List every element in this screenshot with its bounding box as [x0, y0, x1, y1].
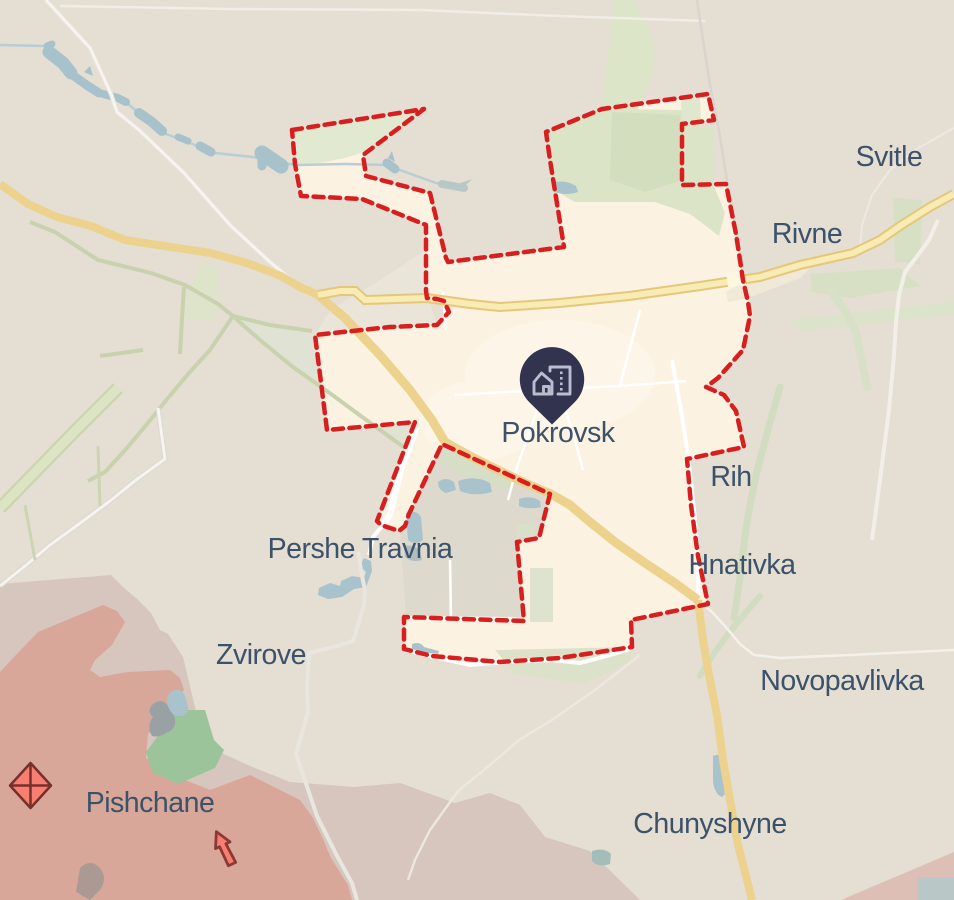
svg-text:Hnativka: Hnativka	[689, 549, 797, 581]
svg-text:Pershe Travnia: Pershe Travnia	[268, 533, 453, 565]
svg-text:Rivne: Rivne	[772, 218, 842, 250]
svg-text:Chunyshyne: Chunyshyne	[633, 808, 786, 840]
svg-text:Svitle: Svitle	[856, 141, 923, 173]
svg-text:Zvirove: Zvirove	[216, 639, 306, 671]
svg-text:Rih: Rih	[710, 461, 751, 493]
svg-text:Pokrovsk: Pokrovsk	[501, 417, 615, 449]
svg-text:Pishchane: Pishchane	[86, 787, 215, 819]
svg-text:Novopavlivka: Novopavlivka	[760, 665, 924, 697]
